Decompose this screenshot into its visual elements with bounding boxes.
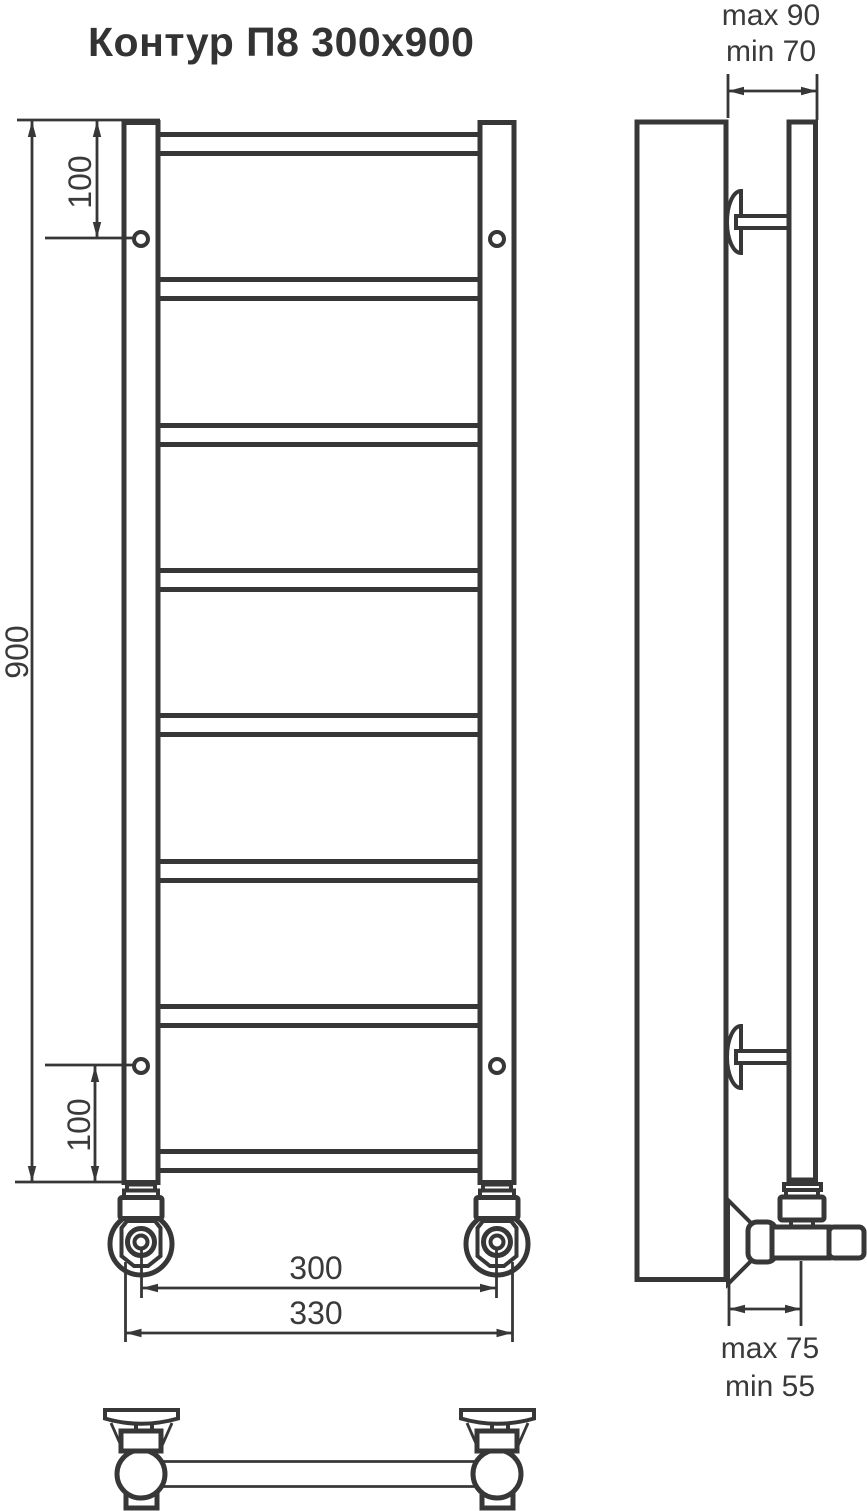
mounting-hole-top-right bbox=[490, 232, 504, 246]
dim-label-overall-width: 330 bbox=[289, 1295, 342, 1331]
arrowhead-right-icon bbox=[480, 1284, 496, 1292]
dim-label-height: 900 bbox=[0, 625, 35, 678]
dimension-wall-clearance-top: max 90 min 70 bbox=[722, 0, 820, 120]
dimension-height: 900 bbox=[0, 121, 36, 1182]
arrowhead-up-icon bbox=[91, 1066, 99, 1082]
dim-label-top-min: min 70 bbox=[726, 35, 816, 68]
bracket-arm bbox=[736, 216, 789, 228]
rung-1 bbox=[150, 135, 488, 154]
rung-5 bbox=[150, 716, 488, 735]
arrowhead-left-icon bbox=[728, 87, 744, 95]
wall-bracket-top bbox=[727, 191, 789, 253]
right-post bbox=[480, 123, 514, 1183]
arrowhead-down-icon bbox=[93, 222, 101, 238]
rung-8 bbox=[150, 1152, 488, 1171]
valve-center-hole bbox=[491, 1236, 504, 1249]
union-nut-bottom-left bbox=[121, 1431, 161, 1451]
wall-plate-flange bbox=[461, 1410, 534, 1424]
side-view: max 90 min 70 max 75 min 55 bbox=[637, 0, 864, 1403]
mounting-hole-bottom-right bbox=[490, 1059, 504, 1073]
rung-6 bbox=[150, 862, 488, 881]
arrowhead-right-icon bbox=[497, 1329, 513, 1337]
rung-3 bbox=[150, 426, 488, 445]
valve-body-bottom-left bbox=[117, 1450, 165, 1498]
valve-union-nut bbox=[780, 1197, 824, 1220]
valve-center-hole bbox=[135, 1236, 148, 1249]
arrowhead-right-icon bbox=[801, 87, 817, 95]
front-view: 900 100 100 300 bbox=[0, 120, 528, 1342]
rung-4 bbox=[150, 571, 488, 590]
dim-label-bottom-min: min 55 bbox=[725, 1370, 815, 1403]
drawing-title: Контур П8 300x900 bbox=[88, 19, 474, 65]
valve-assembly-side bbox=[728, 1184, 864, 1284]
arrowhead-down-icon bbox=[28, 1166, 36, 1182]
valve-outlet bbox=[829, 1227, 864, 1258]
wall-plate-flange bbox=[105, 1410, 178, 1424]
arrowhead-right-icon bbox=[785, 1305, 801, 1313]
union-nut-bottom-right bbox=[477, 1431, 517, 1451]
wall-section bbox=[637, 122, 726, 1280]
dimension-connection-spacing: 300 bbox=[142, 1250, 496, 1292]
valve-body-bottom-right bbox=[473, 1450, 521, 1498]
dim-label-top-offset: 100 bbox=[62, 155, 98, 208]
arrowhead-up-icon bbox=[93, 121, 101, 137]
arrowhead-down-icon bbox=[91, 1166, 99, 1182]
valve-body bbox=[772, 1227, 829, 1258]
technical-drawing-page: Контур П8 300x900 bbox=[0, 0, 867, 1511]
arrowhead-left-icon bbox=[142, 1284, 158, 1292]
dimension-top-offset: 100 bbox=[62, 121, 101, 238]
mounting-hole-bottom-left bbox=[134, 1059, 148, 1073]
mounting-hole-top-left bbox=[134, 232, 148, 246]
rail-tube-side bbox=[789, 122, 816, 1180]
bracket-arm bbox=[736, 1051, 789, 1063]
valve-union-nut bbox=[476, 1198, 518, 1219]
valve-union-nut bbox=[120, 1198, 162, 1219]
left-post bbox=[124, 123, 158, 1183]
wall-bracket-bottom bbox=[727, 1026, 789, 1088]
dim-label-top-max: max 90 bbox=[722, 0, 820, 32]
arrowhead-up-icon bbox=[28, 121, 36, 137]
dim-label-bottom-max: max 75 bbox=[721, 1332, 819, 1365]
dim-label-connection-spacing: 300 bbox=[289, 1250, 342, 1286]
dimension-overall-width: 330 bbox=[126, 1295, 513, 1337]
dimension-wall-clearance-bottom: max 75 min 55 bbox=[721, 1261, 819, 1403]
dimension-bottom-offset: 100 bbox=[61, 1066, 99, 1182]
dim-label-bottom-offset: 100 bbox=[61, 1098, 97, 1151]
rung-2 bbox=[150, 280, 488, 299]
rung-7 bbox=[150, 1007, 488, 1026]
arrowhead-left-icon bbox=[729, 1305, 745, 1313]
arrowhead-left-icon bbox=[126, 1329, 142, 1337]
bottom-view bbox=[105, 1410, 534, 1508]
towel-rail-drawing: Контур П8 300x900 bbox=[0, 0, 867, 1511]
